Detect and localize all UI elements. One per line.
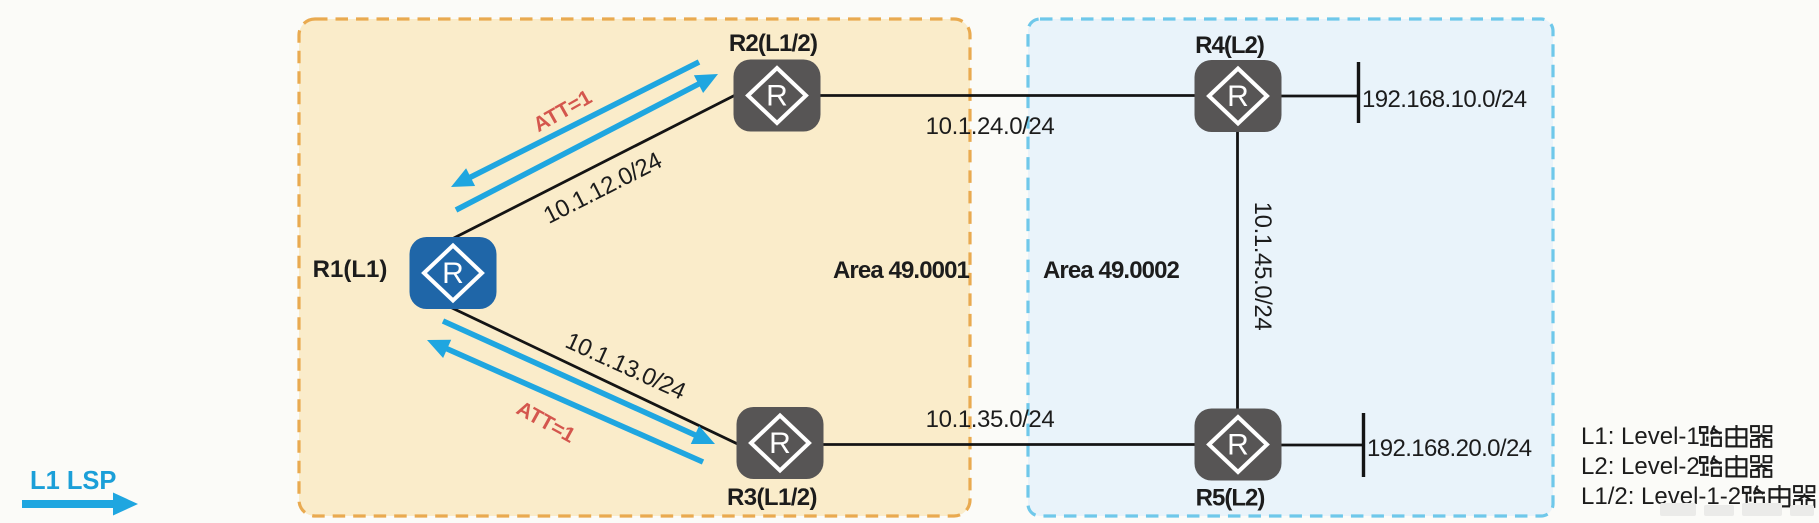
svg-text:192.168.20.0/24: 192.168.20.0/24 bbox=[1367, 435, 1532, 462]
svg-text:192.168.10.0/24: 192.168.10.0/24 bbox=[1362, 86, 1527, 113]
svg-text:R: R bbox=[442, 257, 464, 290]
svg-text:R: R bbox=[1227, 80, 1249, 113]
svg-text:R4(L2): R4(L2) bbox=[1195, 32, 1264, 59]
svg-text:10.1.24.0/24: 10.1.24.0/24 bbox=[926, 113, 1055, 140]
svg-text:R: R bbox=[769, 427, 791, 460]
svg-text:Area 49.0002: Area 49.0002 bbox=[1043, 257, 1180, 284]
svg-text:R2(L1/2): R2(L1/2) bbox=[729, 30, 817, 57]
svg-text:L2: Level-2: L2: Level-2 bbox=[1581, 453, 1700, 480]
svg-text:R3(L1/2): R3(L1/2) bbox=[727, 484, 817, 511]
svg-text:R: R bbox=[766, 80, 788, 113]
svg-text:10.1.45.0/24: 10.1.45.0/24 bbox=[1249, 202, 1276, 331]
svg-text:10.1.35.0/24: 10.1.35.0/24 bbox=[926, 406, 1055, 433]
svg-text:R: R bbox=[1227, 429, 1249, 462]
svg-text:L1: Level-1: L1: Level-1 bbox=[1581, 423, 1700, 450]
svg-text:L1 LSP: L1 LSP bbox=[30, 467, 116, 495]
svg-text:Area 49.0001: Area 49.0001 bbox=[833, 257, 970, 284]
svg-text:R1(L1): R1(L1) bbox=[313, 256, 388, 283]
svg-text:R5(L2): R5(L2) bbox=[1196, 485, 1265, 512]
